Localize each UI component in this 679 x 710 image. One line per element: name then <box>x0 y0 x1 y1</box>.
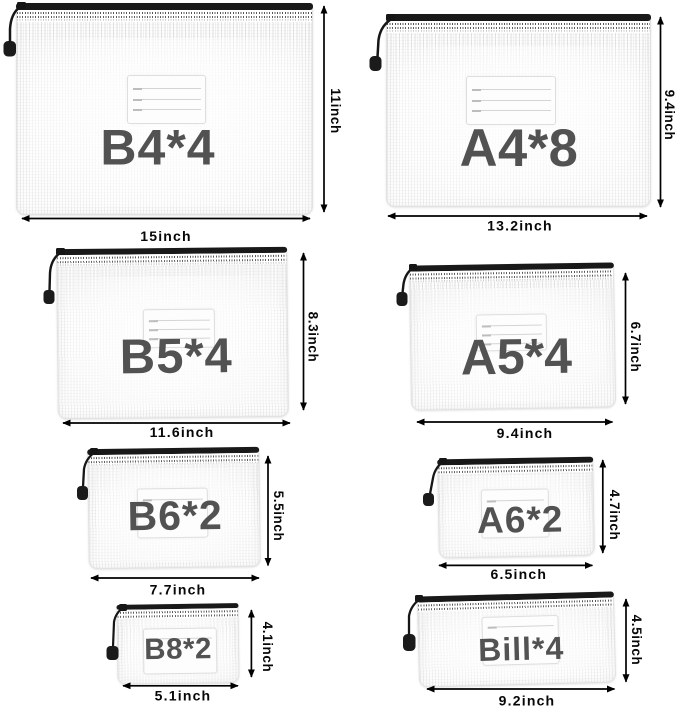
svg-text:11inch: 11inch <box>328 88 343 134</box>
svg-text:5.1inch: 5.1inch <box>155 688 212 704</box>
svg-text:6.7inch: 6.7inch <box>628 322 643 373</box>
svg-text:9.4inch: 9.4inch <box>497 425 554 441</box>
svg-text:4.1inch: 4.1inch <box>260 622 275 673</box>
svg-text:11.6inch: 11.6inch <box>150 424 215 440</box>
svg-text:8.3inch: 8.3inch <box>306 312 321 363</box>
svg-text:9.2inch: 9.2inch <box>499 693 556 709</box>
svg-text:4.7inch: 4.7inch <box>607 490 622 541</box>
svg-text:15inch: 15inch <box>140 228 192 244</box>
svg-text:9.4inch: 9.4inch <box>662 90 677 141</box>
svg-text:13.2inch: 13.2inch <box>487 218 553 234</box>
svg-text:7.7inch: 7.7inch <box>150 582 207 598</box>
svg-text:4.5inch: 4.5inch <box>629 615 644 666</box>
svg-text:5.5inch: 5.5inch <box>271 491 286 542</box>
svg-text:6.5inch: 6.5inch <box>490 566 547 582</box>
